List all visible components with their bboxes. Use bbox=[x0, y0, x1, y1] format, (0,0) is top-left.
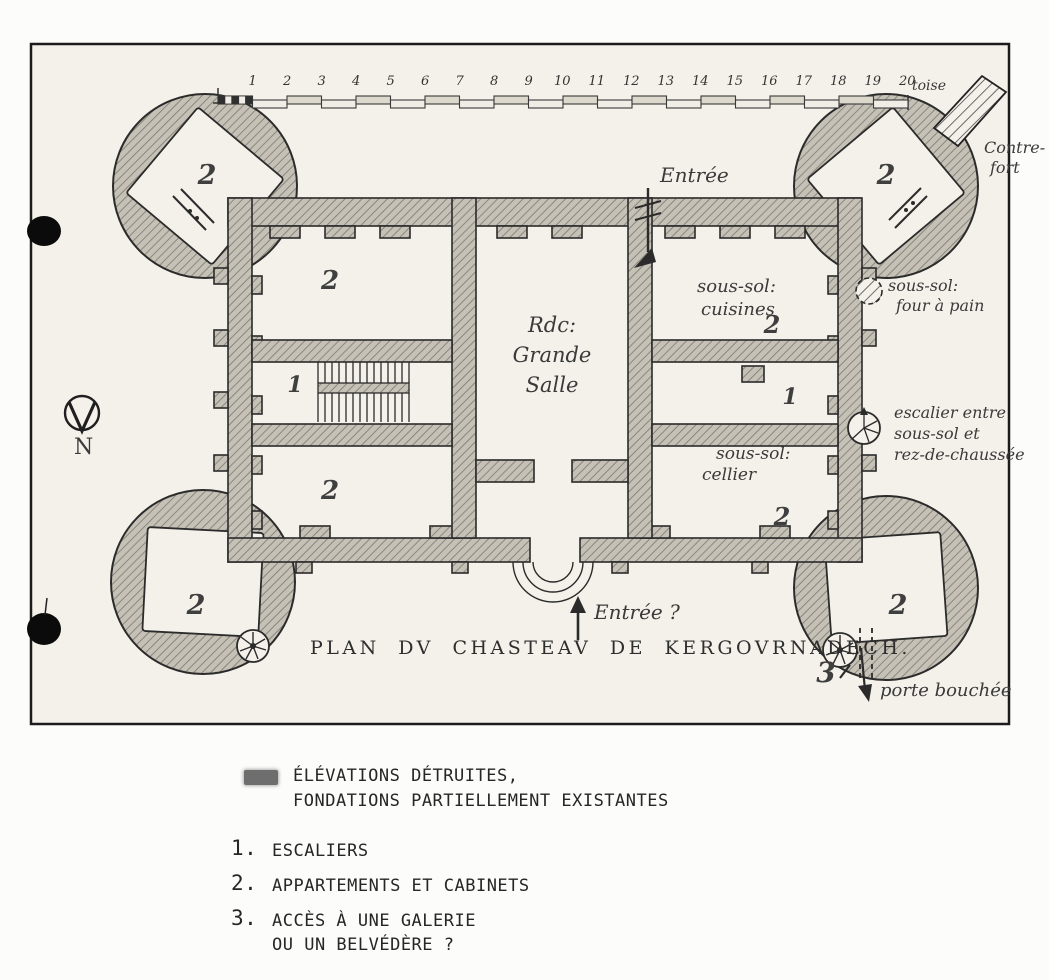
scale-unit bbox=[632, 96, 667, 104]
room-number-west-wing-stairs: 1 bbox=[287, 372, 302, 398]
scale-number: 2 bbox=[283, 74, 291, 90]
bread-oven-marker bbox=[856, 278, 882, 304]
room-number-tower-sw: 2 bbox=[187, 590, 206, 621]
room-number-west-wing-south: 2 bbox=[321, 476, 339, 506]
scale-number: 3 bbox=[318, 74, 326, 90]
legend-destroyed-line2: FONDATIONS PARTIELLEMENT EXISTANTES bbox=[293, 791, 669, 811]
legend-item-2-label: APPARTEMENTS ET CABINETS bbox=[272, 876, 530, 896]
room-number-cuisines: 2 bbox=[764, 310, 781, 339]
scale-unit bbox=[322, 100, 357, 108]
floor-plan-drawing bbox=[0, 0, 1049, 980]
legend-item-1-label: ESCALIERS bbox=[272, 841, 369, 861]
legend-item-3-label-line1: ACCÈS À UNE GALERIE bbox=[272, 911, 476, 931]
scale-number: 14 bbox=[692, 74, 709, 90]
east-wing-wall-upper bbox=[652, 340, 838, 362]
label-contrefort: Contre- fort bbox=[984, 138, 1045, 178]
scale-unit bbox=[287, 96, 322, 104]
scale-unit bbox=[701, 96, 736, 104]
legend-destroyed-line1: ÉLÉVATIONS DÉTRUITES, bbox=[293, 766, 518, 786]
scale-unit bbox=[253, 100, 288, 108]
label-porte-bouchee: porte bouchée bbox=[880, 680, 1012, 703]
plan-title: PLAN DV CHASTEAV DE KERGOVRNADECH. bbox=[310, 637, 810, 659]
north-label: N bbox=[74, 434, 93, 462]
scale-unit bbox=[839, 96, 874, 104]
scale-unit bbox=[391, 100, 426, 108]
scale-unit bbox=[874, 100, 909, 108]
salle-south-wall-west bbox=[476, 460, 534, 482]
label-four-a-pain: sous-sol: four à pain bbox=[888, 276, 984, 316]
scale-subunit bbox=[239, 96, 246, 104]
scale-subunit bbox=[232, 96, 239, 104]
scale-number: 10 bbox=[554, 74, 571, 90]
scale-number: 5 bbox=[387, 74, 395, 90]
room-number-tower-se: 2 bbox=[889, 590, 908, 621]
scale-unit-label: toise bbox=[912, 78, 946, 96]
room-number-tower-ne: 2 bbox=[877, 160, 896, 191]
scale-number: 6 bbox=[421, 74, 429, 90]
legend-item-1-num: 1. bbox=[231, 836, 257, 860]
label-cellier: sous-sol: cellier bbox=[702, 444, 791, 487]
scale-unit bbox=[598, 100, 633, 108]
label-grande-salle: Rdc: Grande Salle bbox=[492, 310, 612, 400]
scale-number: 8 bbox=[490, 74, 498, 90]
number-gallery-access: 3 bbox=[816, 656, 835, 689]
scale-number: 12 bbox=[623, 74, 640, 90]
scale-subunit bbox=[225, 96, 232, 104]
scale-unit bbox=[736, 100, 771, 108]
legend-item-2-num: 2. bbox=[231, 871, 257, 895]
scale-unit bbox=[529, 100, 564, 108]
hole-punch-top bbox=[27, 216, 61, 246]
salle-west-wall bbox=[452, 198, 476, 538]
scale-unit bbox=[770, 96, 805, 104]
room-number-corridor: 1 bbox=[782, 384, 797, 410]
scale-number: 19 bbox=[865, 74, 882, 90]
scale-number: 18 bbox=[830, 74, 847, 90]
scale-number: 7 bbox=[456, 74, 464, 90]
scale-unit bbox=[805, 100, 840, 108]
room-number-tower-nw: 2 bbox=[198, 160, 217, 191]
tower-sw bbox=[111, 490, 295, 674]
scale-number: 16 bbox=[761, 74, 778, 90]
east-wing-wall-lower bbox=[652, 424, 838, 446]
legend-swatch-destroyed bbox=[244, 770, 278, 785]
scale-subunit bbox=[218, 96, 225, 104]
scale-number: 15 bbox=[727, 74, 744, 90]
label-entree-bottom: Entrée ? bbox=[594, 600, 680, 625]
scale-unit bbox=[425, 96, 460, 104]
scale-number: 4 bbox=[352, 74, 360, 90]
scale-unit bbox=[563, 96, 598, 104]
scale-unit bbox=[460, 100, 495, 108]
legend-item-3-num: 3. bbox=[231, 906, 257, 930]
scale-number: 13 bbox=[658, 74, 675, 90]
west-wing-wall-upper bbox=[252, 340, 452, 362]
scale-unit bbox=[494, 96, 529, 104]
room-number-cellier: 2 bbox=[774, 502, 791, 531]
west-wall bbox=[228, 198, 252, 562]
scale-unit bbox=[356, 96, 391, 104]
label-entree-top: Entrée bbox=[660, 163, 729, 188]
room-number-west-wing-north: 2 bbox=[321, 266, 339, 296]
scale-number: 9 bbox=[525, 74, 533, 90]
scale-number: 1 bbox=[249, 74, 257, 90]
corridor-stub bbox=[742, 366, 764, 382]
scale-number: 17 bbox=[796, 74, 813, 90]
scale-number: 11 bbox=[589, 74, 606, 90]
scale-unit bbox=[667, 100, 702, 108]
south-wall-west bbox=[228, 538, 530, 562]
scale-subunit bbox=[246, 96, 253, 104]
tower-sw-spiral-stair bbox=[237, 630, 269, 662]
label-escalier-note: escalier entre sous-sol et rez-de-chauss… bbox=[894, 402, 1025, 465]
south-wall-east bbox=[580, 538, 862, 562]
legend-item-3-label-line2: OU UN BELVÉDÈRE ? bbox=[272, 935, 455, 955]
hole-punch-bottom bbox=[27, 613, 61, 645]
north-wall bbox=[228, 198, 860, 226]
east-wall bbox=[838, 198, 862, 562]
west-wing-wall-lower bbox=[252, 424, 452, 446]
salle-south-wall-east bbox=[572, 460, 628, 482]
